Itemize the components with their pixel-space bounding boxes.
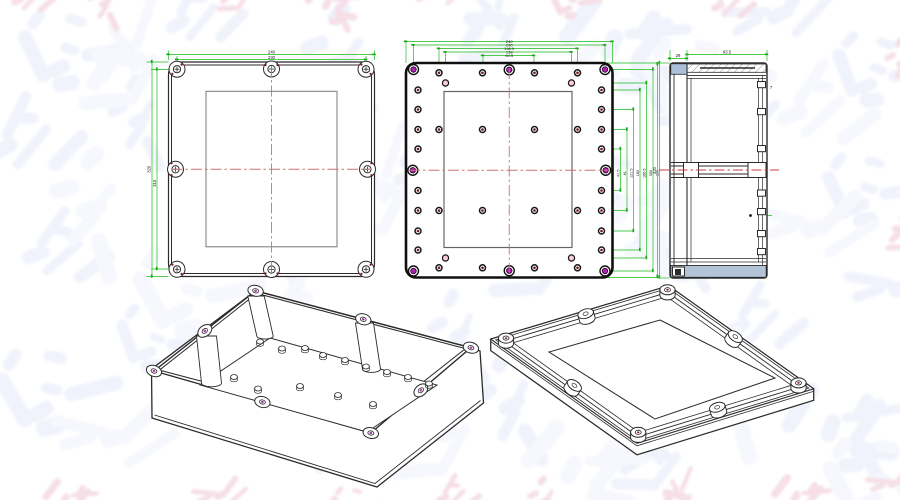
svg-text:320: 320 <box>652 166 657 174</box>
svg-text:81: 81 <box>623 171 627 175</box>
svg-text:29: 29 <box>676 53 681 58</box>
svg-text:186.5: 186.5 <box>642 168 646 178</box>
svg-text:93.5: 93.5 <box>723 49 732 54</box>
svg-text:310: 310 <box>152 179 157 187</box>
svg-text:230: 230 <box>268 55 276 60</box>
svg-text:64.5: 64.5 <box>505 53 514 58</box>
svg-text:41.5: 41.5 <box>616 170 620 177</box>
svg-text:320: 320 <box>146 165 151 173</box>
svg-text:121.5: 121.5 <box>629 168 633 178</box>
svg-text:160: 160 <box>636 170 640 176</box>
